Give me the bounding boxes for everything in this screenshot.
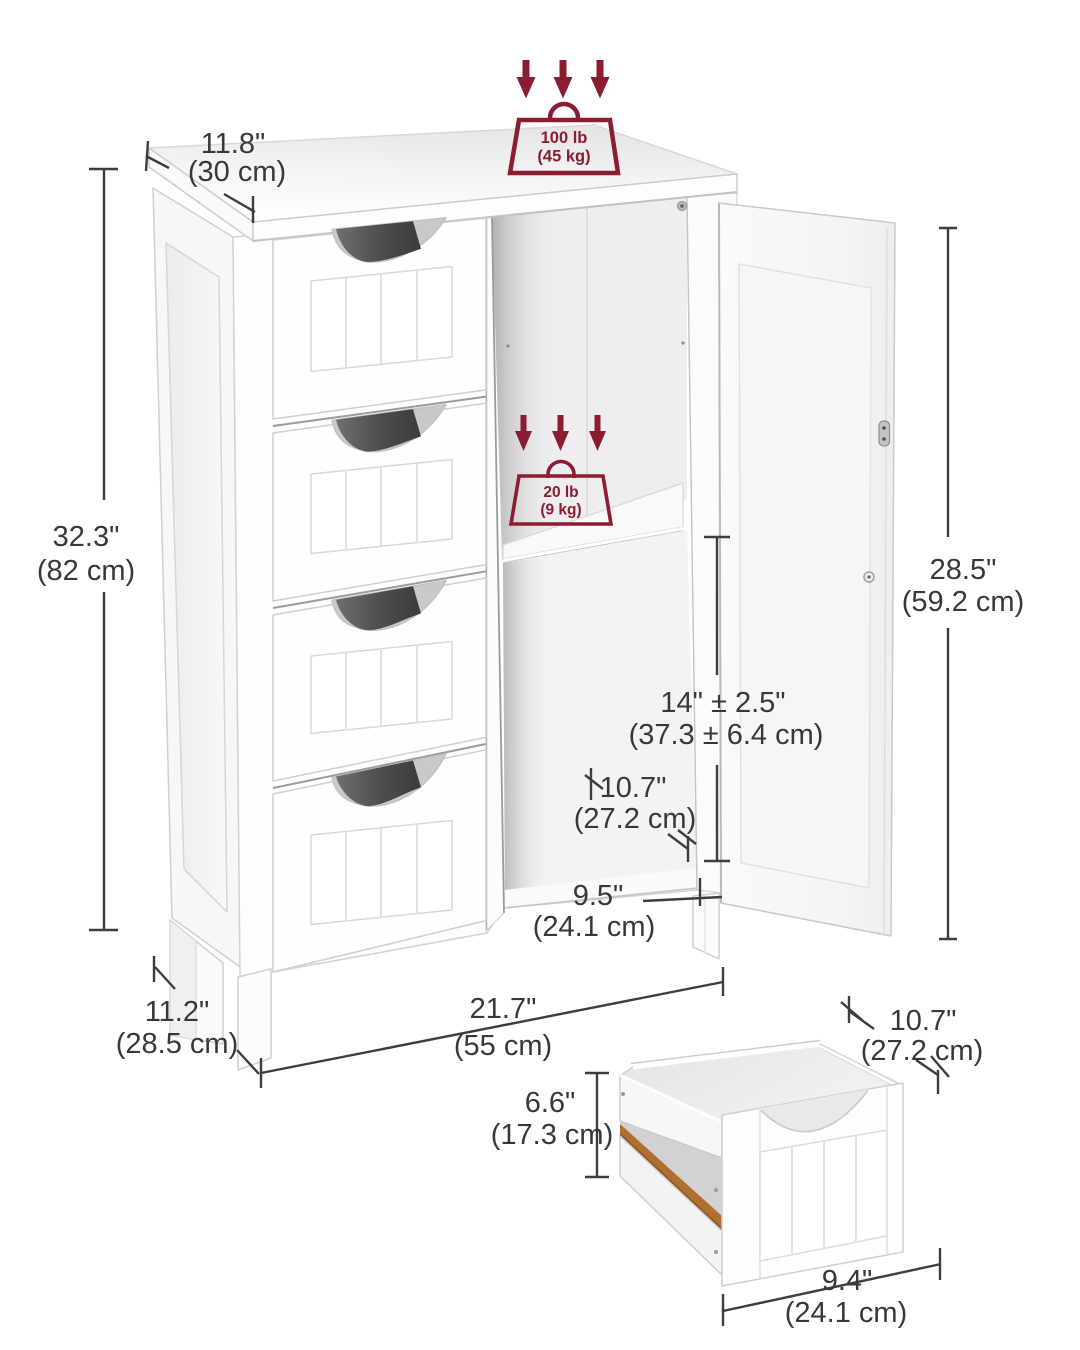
svg-text:10.7": 10.7" [890,1005,957,1037]
svg-text:(82 cm): (82 cm) [37,555,135,587]
svg-text:21.7": 21.7" [470,993,537,1025]
svg-text:11.2": 11.2" [145,996,210,1028]
svg-text:(27.2 cm): (27.2 cm) [861,1035,983,1067]
svg-text:20 lb: 20 lb [543,484,578,501]
svg-text:(27.2 cm): (27.2 cm) [574,803,696,835]
svg-text:(45 kg): (45 kg) [537,148,590,166]
svg-text:(24.1 cm): (24.1 cm) [785,1297,907,1329]
svg-text:9.4": 9.4" [822,1265,873,1297]
svg-text:10.7": 10.7" [600,772,667,804]
svg-text:9.5": 9.5" [573,880,624,912]
svg-text:(37.3 ± 6.4 cm): (37.3 ± 6.4 cm) [629,719,824,751]
svg-text:(17.3 cm): (17.3 cm) [491,1119,613,1151]
svg-text:6.6": 6.6" [525,1087,576,1119]
svg-text:(9 kg): (9 kg) [540,502,581,519]
svg-text:14" ± 2.5": 14" ± 2.5" [660,687,785,719]
svg-text:(59.2 cm): (59.2 cm) [902,586,1024,618]
svg-text:(24.1 cm): (24.1 cm) [533,911,655,943]
svg-text:100 lb: 100 lb [541,129,588,147]
svg-text:28.5": 28.5" [930,554,997,586]
svg-text:(55 cm): (55 cm) [454,1030,552,1062]
svg-text:32.3": 32.3" [53,521,120,553]
svg-text:(28.5 cm): (28.5 cm) [116,1028,238,1060]
svg-text:(30 cm): (30 cm) [188,156,286,188]
